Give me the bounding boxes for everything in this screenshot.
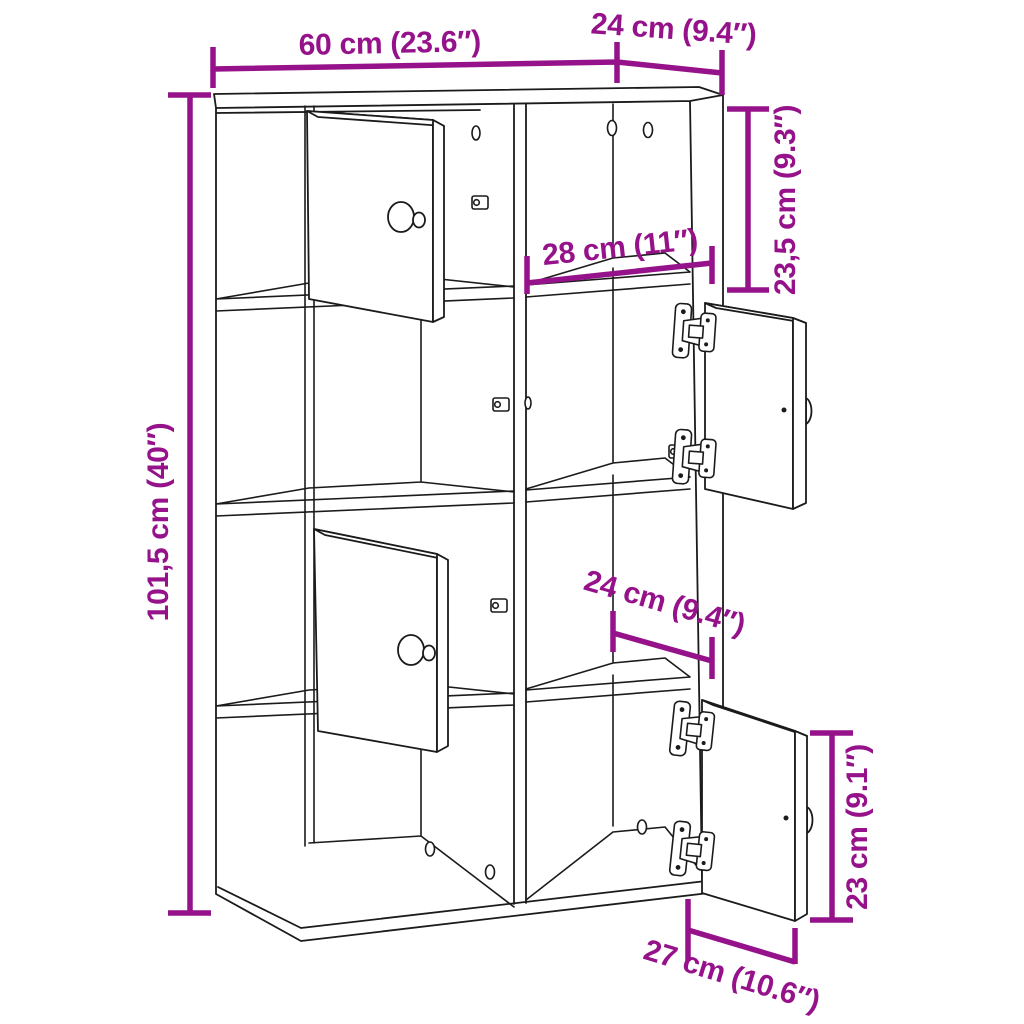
door-knob <box>388 202 414 232</box>
dimension-height-label: 101,5 cm (40″) <box>142 423 175 622</box>
bookcase-dimension-diagram: 60 cm (23.6″) 24 cm (9.4″) 101,5 cm (40″… <box>0 0 1024 1024</box>
open-door-top-left <box>307 111 444 322</box>
cabinet-drawing <box>214 87 812 941</box>
dimension-door-height-label: 23 cm (9.1″) <box>841 744 874 910</box>
open-door-bottom-right <box>669 700 812 921</box>
door-knob-screw <box>782 408 787 413</box>
dimension-top-section-label: 23,5 cm (9.3″) <box>769 105 802 295</box>
door-knob <box>398 635 424 665</box>
diagram-page: 60 cm (23.6″) 24 cm (9.4″) 101,5 cm (40″… <box>0 0 1024 1024</box>
dimension-width: 60 cm (23.6″) <box>213 25 617 88</box>
dimension-door-height: 23 cm (9.1″) <box>810 733 874 920</box>
center-divider <box>514 104 526 904</box>
cabinet-body-outline <box>214 87 723 941</box>
dimension-top-section-height: 23,5 cm (9.3″) <box>727 105 802 295</box>
open-door-upper-right <box>672 303 811 509</box>
right-column-interior <box>526 104 700 900</box>
door-knob-screw <box>784 816 789 821</box>
dimension-width-label: 60 cm (23.6″) <box>298 25 481 62</box>
open-door-middle-left <box>314 529 448 752</box>
dimension-height: 101,5 cm (40″) <box>142 95 211 913</box>
